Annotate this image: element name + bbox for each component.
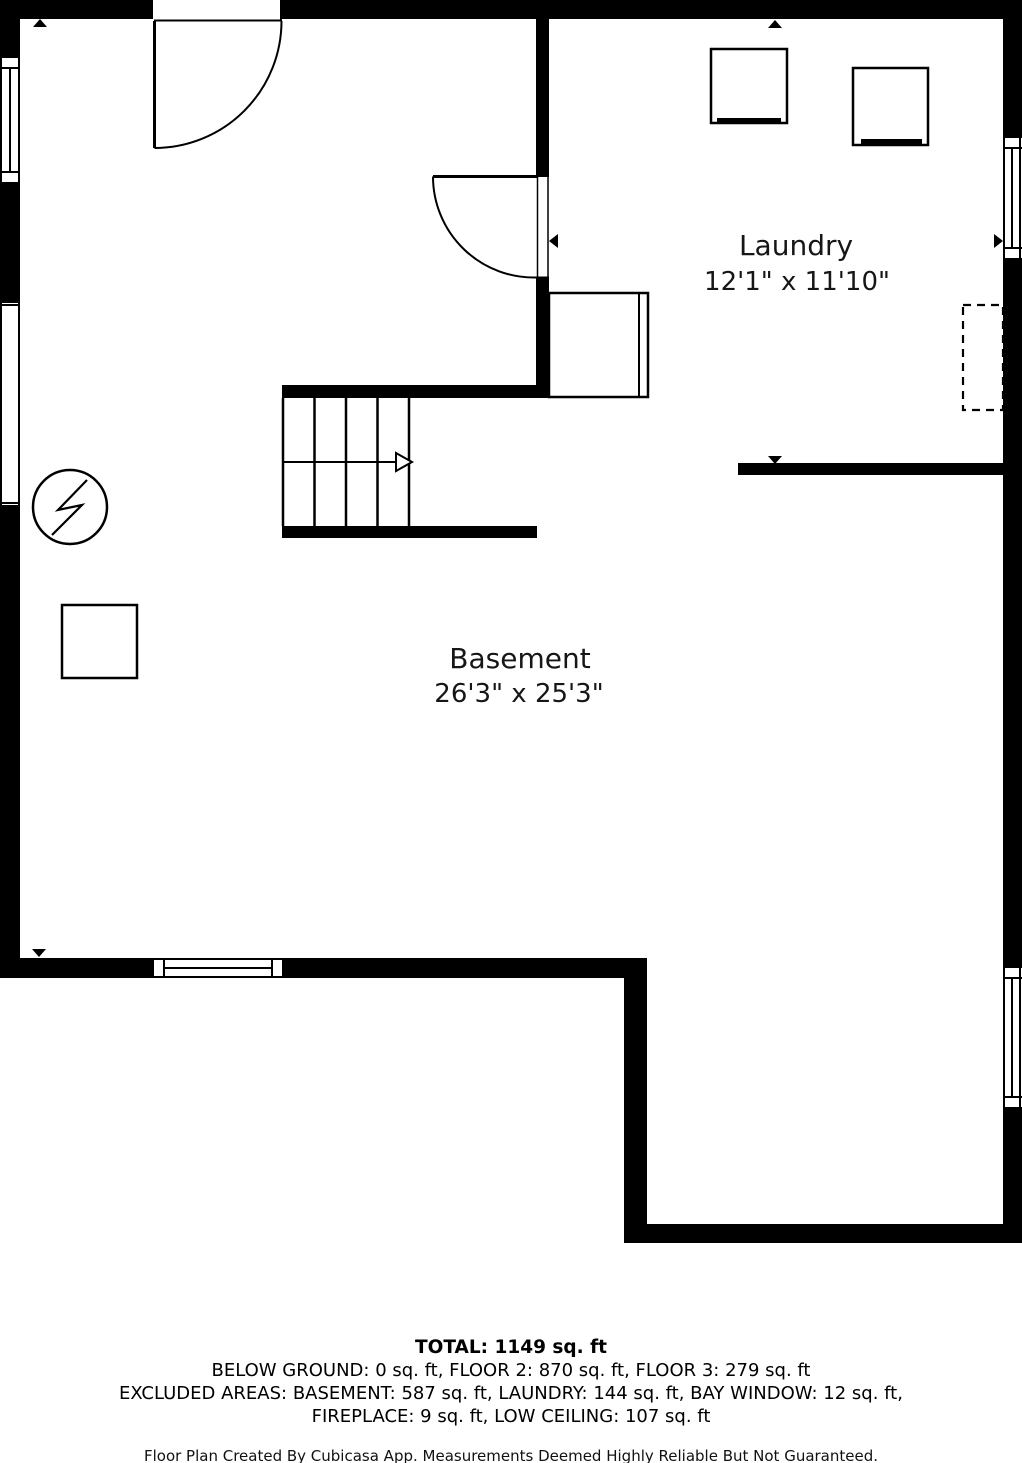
wall-laundry-left-upper <box>536 19 549 175</box>
marker-bottom-left-down <box>32 949 46 957</box>
footer-disclaimer: Floor Plan Created By Cubicasa App. Meas… <box>0 1447 1022 1463</box>
wall-left-middle <box>0 182 20 303</box>
low-ceiling-dashed-area <box>963 305 1003 410</box>
window-right-lower <box>1003 968 1022 1107</box>
washer-fixture <box>711 49 787 123</box>
exterior-walls <box>0 0 1022 1243</box>
summary-total: TOTAL: 1149 sq. ft <box>0 1336 1022 1359</box>
summary-excluded-areas: EXCLUDED AREAS: BASEMENT: 587 sq. ft, LA… <box>0 1382 1022 1405</box>
marker-top-left-up <box>33 19 47 27</box>
dryer-fixture <box>853 68 928 145</box>
floor-plan-drawing <box>0 0 1022 1463</box>
door-swing-arc <box>433 177 537 278</box>
water-heater-fixture <box>549 293 648 397</box>
window-left-upper <box>0 58 20 182</box>
marker-door-left <box>549 234 558 248</box>
summary-excluded-areas-2: FIREPLACE: 9 sq. ft, LOW CEILING: 107 sq… <box>0 1405 1022 1428</box>
door-laundry <box>433 176 549 278</box>
wall-right-lower <box>1003 1107 1022 1224</box>
door-swing-arc <box>155 21 282 148</box>
window-right-upper <box>1003 138 1022 258</box>
fixtures <box>33 49 928 678</box>
summary-floors: BELOW GROUND: 0 sq. ft, FLOOR 2: 870 sq.… <box>0 1359 1022 1382</box>
room-label-laundry: Laundry <box>739 232 853 260</box>
door-top-entry <box>154 0 282 148</box>
marker-laundry-top-up <box>768 20 782 28</box>
wall-right-upper <box>1003 19 1022 138</box>
utility-square-fixture <box>62 605 137 678</box>
wall-bottom-left-a <box>0 958 154 978</box>
wall-stairs-top <box>282 385 549 398</box>
wall-step-vertical <box>624 978 647 1243</box>
wall-top-left-segment <box>0 0 153 19</box>
room-dimensions-laundry: 12'1" x 11'10" <box>704 269 890 295</box>
floor-plan-page: Laundry 12'1" x 11'10" Basement 26'3" x … <box>0 0 1022 1463</box>
wall-bottom-left-b <box>282 958 647 978</box>
marker-window-right <box>994 234 1003 248</box>
window-left-lower <box>0 303 20 505</box>
windows <box>0 58 1022 1107</box>
wall-stairs-bottom <box>282 526 537 538</box>
room-dimensions-basement: 26'3" x 25'3" <box>434 681 603 707</box>
electrical-panel-symbol <box>33 470 107 544</box>
room-label-basement: Basement <box>449 645 590 673</box>
direction-markers <box>32 19 1003 957</box>
wall-bottom-right <box>624 1224 1022 1243</box>
window-bottom <box>154 958 282 978</box>
wall-right-middle <box>1003 258 1022 968</box>
staircase <box>283 398 412 526</box>
wall-left-lower <box>0 505 20 958</box>
marker-laundry-wall-down <box>768 456 782 464</box>
wall-laundry-bottom <box>738 463 1022 475</box>
wall-laundry-left-lower <box>536 277 549 398</box>
wall-left-upper <box>0 19 20 58</box>
wall-top-right-segment <box>281 0 1022 19</box>
